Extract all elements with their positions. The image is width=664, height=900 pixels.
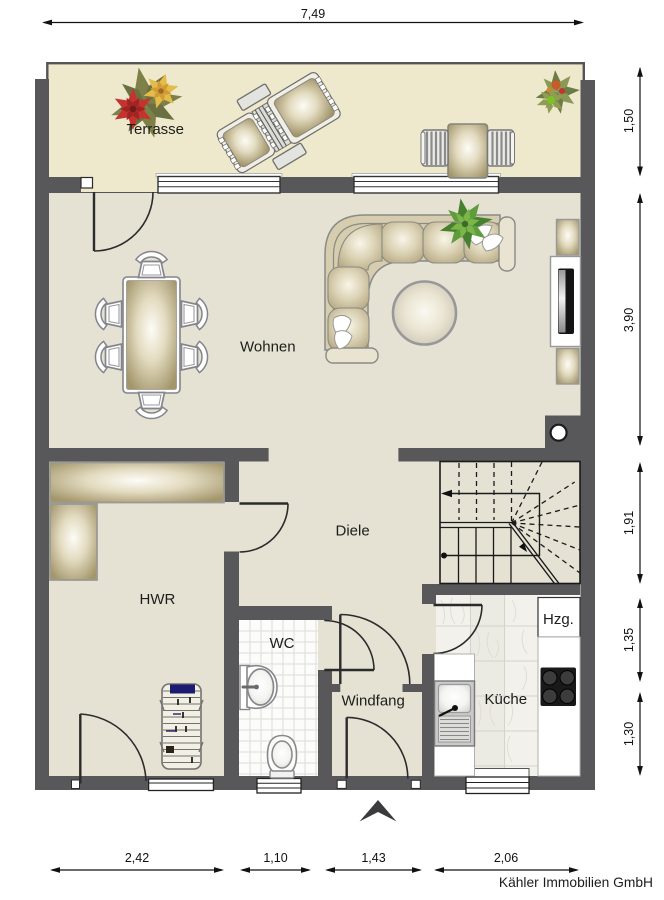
svg-text:Wohnen: Wohnen — [240, 339, 296, 356]
svg-text:2,42: 2,42 — [125, 851, 149, 865]
svg-text:3,90: 3,90 — [622, 308, 636, 332]
svg-text:HWR: HWR — [140, 591, 176, 608]
svg-text:1,10: 1,10 — [263, 851, 287, 865]
svg-text:1,50: 1,50 — [622, 109, 636, 133]
svg-text:Küche: Küche — [485, 691, 528, 708]
svg-text:1,30: 1,30 — [622, 722, 636, 746]
svg-text:Hzg.: Hzg. — [543, 611, 574, 628]
svg-text:WC: WC — [270, 635, 295, 652]
svg-text:1,91: 1,91 — [622, 511, 636, 535]
svg-text:7,49: 7,49 — [301, 7, 325, 21]
svg-text:Terrasse: Terrasse — [127, 121, 185, 138]
svg-text:1,35: 1,35 — [622, 628, 636, 652]
svg-text:2,06: 2,06 — [494, 851, 518, 865]
svg-text:Windfang: Windfang — [342, 693, 405, 710]
svg-text:Kähler Immobilien GmbH: Kähler Immobilien GmbH — [499, 875, 653, 890]
svg-text:1,43: 1,43 — [361, 851, 385, 865]
svg-text:Diele: Diele — [336, 523, 370, 540]
